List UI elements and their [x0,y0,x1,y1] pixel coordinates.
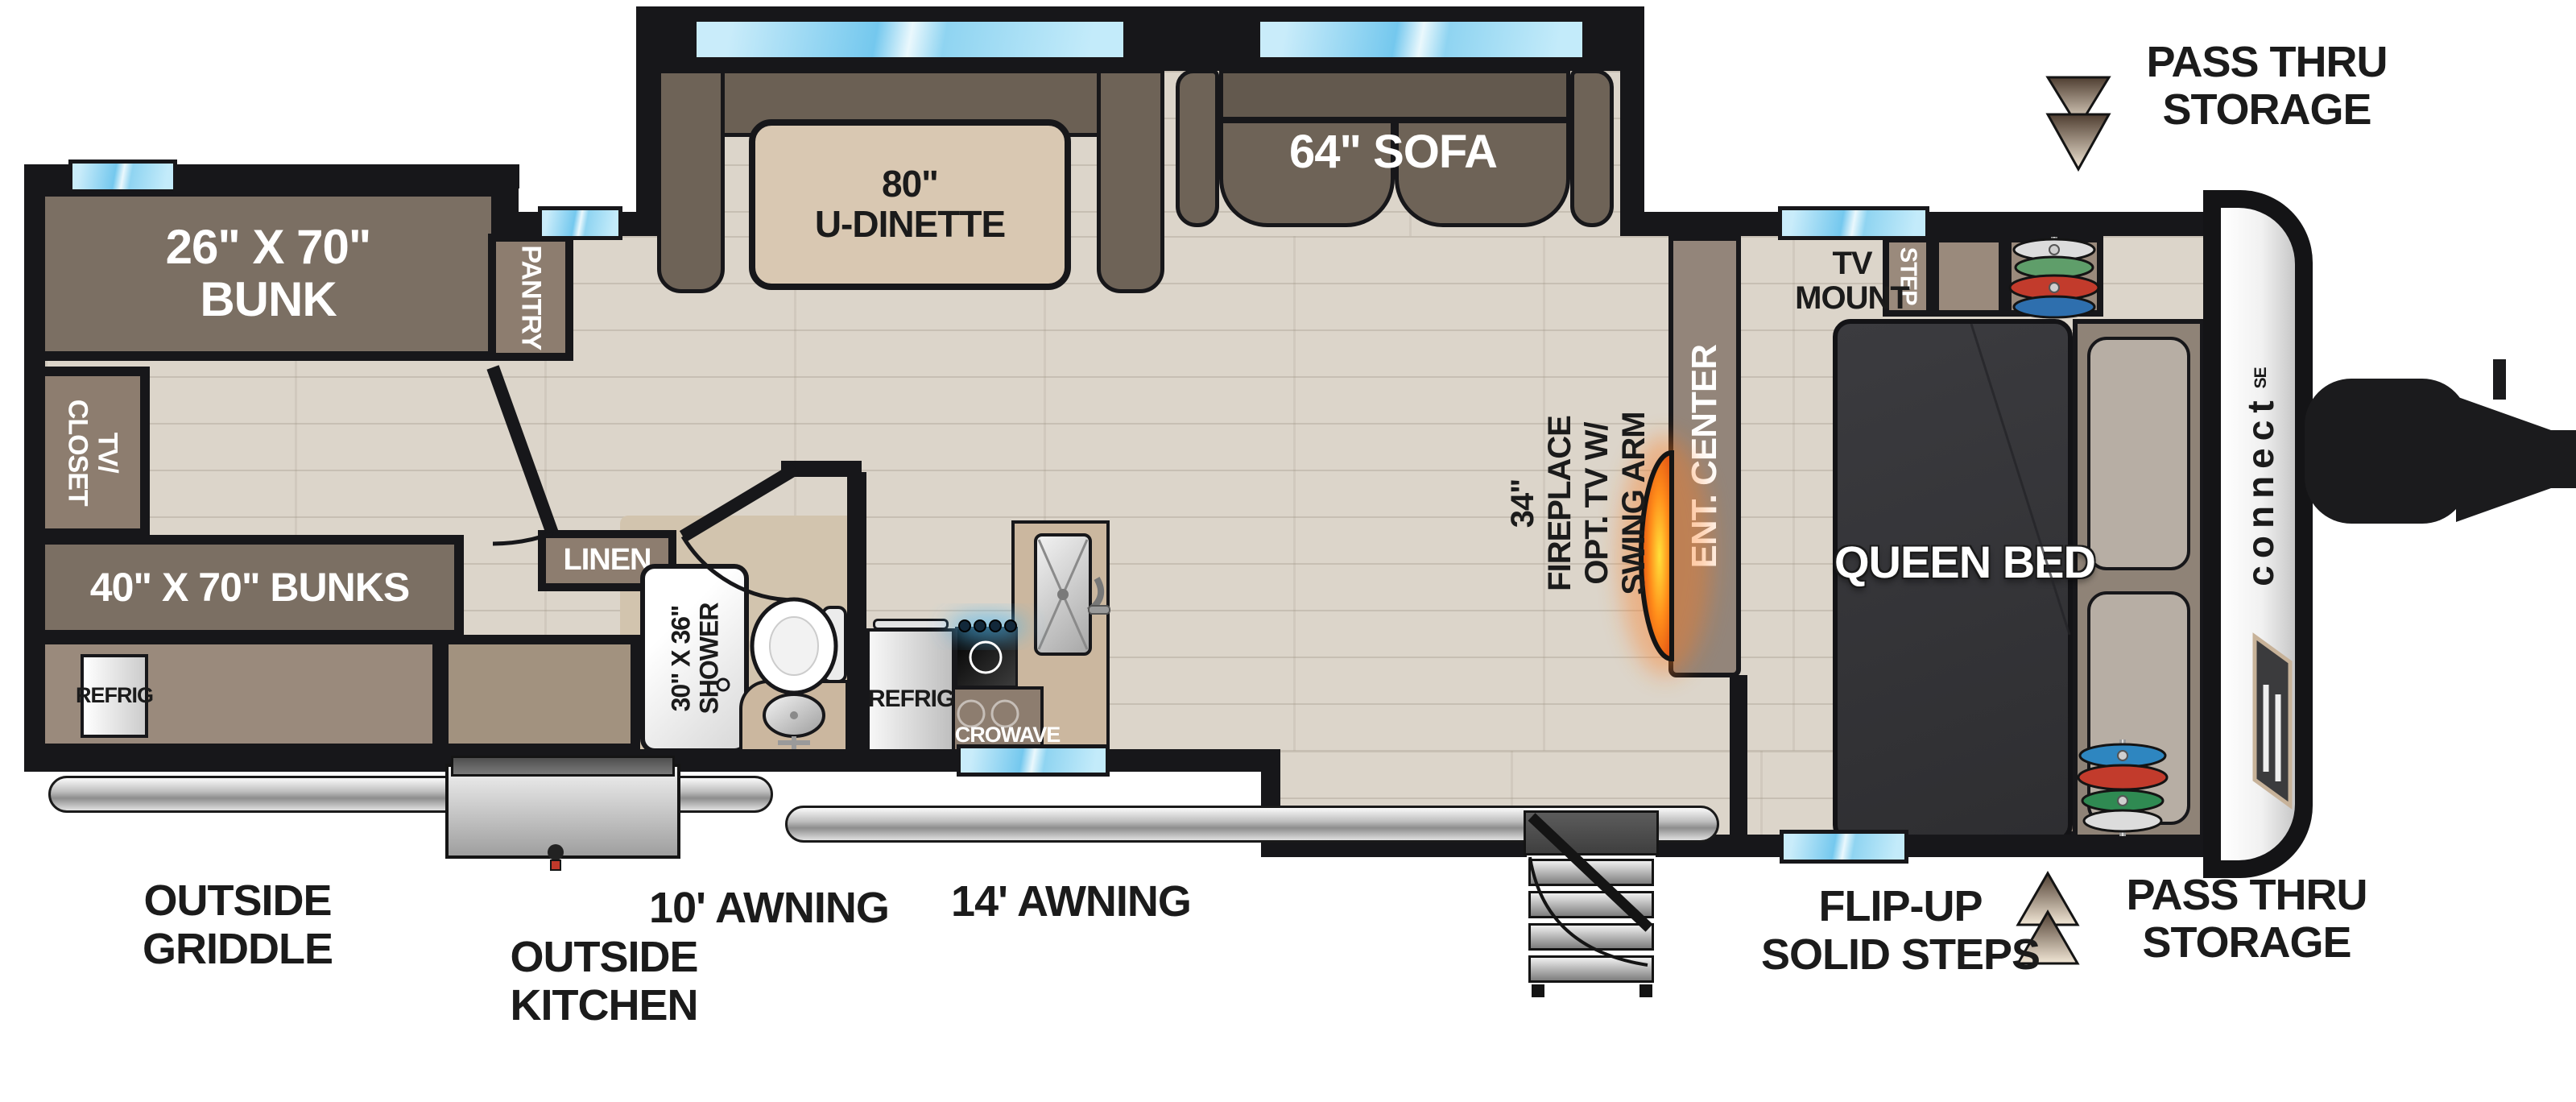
floorplan-canvas: 80" U-DINETTE 64" SOFA 26" X 70" BUNK TV… [0,0,2576,1102]
fireplace-label-2: FIREPLACE [1541,412,1578,594]
bunkroom-door [493,367,552,544]
flip-steps-line2: SOLID STEPS [1723,930,2078,979]
awning-10-label: 10' AWNING [640,884,898,931]
pass-thru-bottom-line2: STORAGE [2086,919,2408,967]
hitch-icon [2305,359,2576,524]
outside-griddle-label: OUTSIDE GRIDDLE [64,876,411,974]
pass-thru-arrow-down-icon [2048,77,2109,169]
bath-sink-icon [764,694,824,749]
hanging-clothes-top-icon [2010,237,2098,317]
griddle-knob-icon [548,844,564,870]
tv-mount-label-2: MOUNT [1776,281,1929,316]
steps-strap [1530,817,1649,965]
fireplace-label: 34" FIREPLACE OPT. TV W/ SWING ARM [1494,350,1663,657]
bed-seam [1971,324,2069,635]
brand-emblem-icon [2255,636,2290,806]
tv-mount-label: TV MOUNT [1776,246,1929,316]
outside-kitchen-line2: KITCHEN [435,981,773,1029]
pass-thru-bottom-line1: PASS THRU [2086,872,2408,919]
kitchen-sink-icon [1039,540,1110,649]
pass-thru-top-line1: PASS THRU [2118,39,2416,86]
pass-thru-top-line2: STORAGE [2118,86,2416,134]
outside-kitchen-label: OUTSIDE KITCHEN [435,933,773,1030]
bathroom-door [683,469,796,600]
outside-griddle-line2: GRIDDLE [64,925,411,973]
outside-kitchen-line1: OUTSIDE [435,933,773,981]
fireplace-label-1: 34" [1504,412,1541,594]
fireplace-label-4: SWING ARM [1615,412,1652,594]
hanging-clothes-bottom-icon [2078,739,2167,836]
shower-drain-icon [717,679,729,690]
outside-griddle-line1: OUTSIDE [64,876,411,925]
flip-steps-line1: FLIP-UP [1723,882,2078,930]
stove-icon [947,616,1028,727]
toilet-icon [752,599,846,693]
awning-14-label: 14' AWNING [926,878,1216,925]
pass-thru-bottom-label: PASS THRU STORAGE [2086,872,2408,967]
pass-thru-top-label: PASS THRU STORAGE [2118,39,2416,135]
fireplace-label-3: OPT. TV W/ [1578,412,1615,594]
flip-steps-label: FLIP-UP SOLID STEPS [1723,882,2078,980]
tv-mount-label-1: TV [1776,246,1929,281]
